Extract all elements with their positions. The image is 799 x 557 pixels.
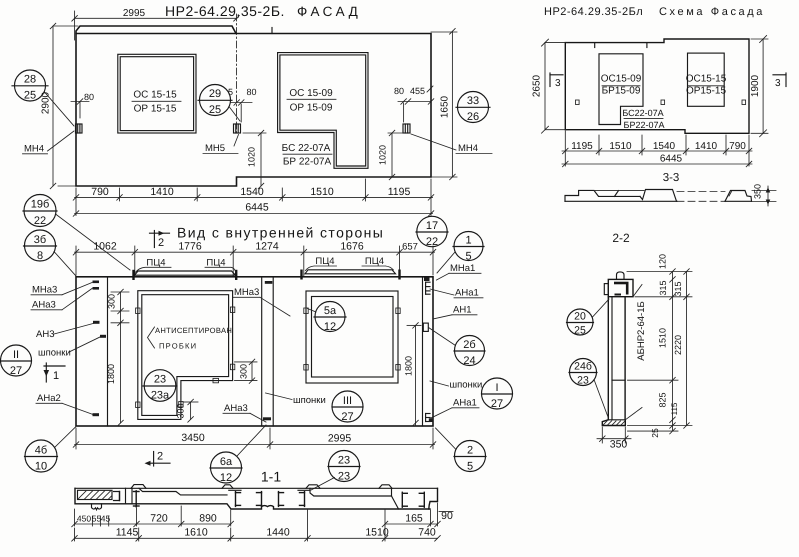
svg-text:315: 315 — [673, 281, 683, 296]
svg-text:1800: 1800 — [404, 356, 414, 376]
svg-text:23а: 23а — [151, 390, 170, 402]
svg-text:Схема Фасада: Схема Фасада — [659, 6, 765, 18]
svg-text:350: 350 — [610, 439, 628, 451]
svg-text:22: 22 — [426, 236, 438, 248]
svg-text:2650: 2650 — [532, 74, 543, 97]
svg-text:27: 27 — [10, 365, 22, 377]
svg-text:2995: 2995 — [123, 8, 146, 19]
svg-text:80: 80 — [247, 87, 257, 97]
svg-text:шпонки: шпонки — [450, 380, 483, 391]
svg-text:5: 5 — [465, 251, 471, 263]
svg-text:АН1: АН1 — [453, 305, 471, 316]
svg-text:350: 350 — [753, 184, 763, 199]
svg-text:ПЦ4: ПЦ4 — [206, 258, 225, 269]
svg-text:1776: 1776 — [178, 241, 202, 253]
svg-text:шпонки: шпонки — [38, 348, 71, 359]
svg-text:ОР 15-15: ОР 15-15 — [134, 104, 177, 115]
svg-text:6445: 6445 — [245, 202, 269, 214]
svg-text:ПЦ4: ПЦ4 — [146, 258, 165, 269]
svg-text:3-3: 3-3 — [663, 172, 680, 184]
svg-text:1610: 1610 — [184, 527, 208, 539]
svg-text:10: 10 — [35, 461, 47, 473]
svg-text:3б: 3б — [34, 234, 46, 246]
svg-text:26: 26 — [467, 111, 479, 123]
svg-text:23: 23 — [154, 374, 166, 386]
svg-text:740: 740 — [418, 527, 436, 539]
svg-text:300: 300 — [176, 403, 186, 418]
svg-text:890: 890 — [199, 513, 217, 525]
svg-text:1062: 1062 — [93, 241, 117, 253]
svg-text:25: 25 — [209, 104, 221, 116]
svg-text:ПРОБКИ: ПРОБКИ — [159, 342, 197, 351]
svg-text:1540: 1540 — [240, 186, 264, 198]
svg-text:45: 45 — [101, 514, 111, 524]
svg-text:НР2-64.29.35-2Бл: НР2-64.29.35-2Бл — [544, 6, 643, 18]
svg-text:1510: 1510 — [310, 186, 334, 198]
svg-text:120: 120 — [658, 254, 668, 269]
svg-text:12: 12 — [324, 321, 336, 333]
svg-text:1800: 1800 — [106, 364, 116, 384]
svg-text:657: 657 — [402, 242, 418, 253]
svg-text:1195: 1195 — [388, 186, 411, 198]
svg-text:22: 22 — [34, 215, 46, 227]
svg-text:МНа3: МНа3 — [32, 285, 57, 296]
svg-text:ОР15-15: ОР15-15 — [686, 86, 726, 97]
svg-text:2220: 2220 — [673, 335, 683, 355]
svg-text:1900: 1900 — [750, 74, 761, 97]
svg-text:ПЦ4: ПЦ4 — [365, 256, 384, 267]
svg-text:1650: 1650 — [440, 95, 451, 118]
svg-text:2: 2 — [467, 445, 473, 457]
svg-text:1410: 1410 — [695, 141, 718, 152]
svg-text:1540: 1540 — [653, 141, 676, 152]
svg-text:450: 450 — [77, 514, 91, 524]
svg-text:27: 27 — [341, 411, 353, 423]
svg-text:АБНР2-64-1Б: АБНР2-64-1Б — [636, 301, 647, 360]
svg-text:115: 115 — [670, 402, 679, 415]
svg-text:23: 23 — [338, 471, 350, 483]
svg-text:5: 5 — [467, 461, 473, 473]
svg-text:1: 1 — [465, 235, 471, 247]
svg-text:ОС15-09: ОС15-09 — [601, 74, 642, 85]
svg-text:28: 28 — [24, 74, 36, 86]
svg-text:23: 23 — [338, 455, 350, 467]
svg-text:6а: 6а — [220, 456, 233, 468]
svg-text:БС 22-07А: БС 22-07А — [282, 143, 331, 154]
svg-text:1510: 1510 — [609, 141, 632, 152]
svg-text:АНа3: АНа3 — [32, 300, 56, 311]
svg-text:80: 80 — [84, 92, 94, 102]
svg-text:1510: 1510 — [658, 328, 668, 348]
svg-text:2б: 2б — [463, 339, 475, 351]
svg-text:25: 25 — [574, 325, 586, 337]
svg-text:23: 23 — [577, 375, 589, 387]
svg-text:25: 25 — [650, 428, 660, 438]
svg-text:1195: 1195 — [571, 141, 593, 152]
svg-text:II: II — [13, 349, 19, 361]
svg-text:27: 27 — [491, 398, 503, 410]
svg-text:ФАСАД: ФАСАД — [297, 4, 361, 19]
svg-text:ПЦ4: ПЦ4 — [315, 256, 334, 267]
svg-text:165: 165 — [405, 513, 423, 525]
svg-text:I: I — [495, 382, 498, 394]
svg-text:790: 790 — [729, 141, 746, 152]
svg-text:825: 825 — [658, 392, 668, 407]
svg-text:АНТИСЕПТИРОВАН: АНТИСЕПТИРОВАН — [155, 326, 232, 335]
svg-text:АН3: АН3 — [36, 329, 54, 340]
svg-text:НР2-64.29,35-2Б.: НР2-64.29,35-2Б. — [165, 3, 285, 19]
svg-text:790: 790 — [91, 186, 109, 198]
svg-text:1676: 1676 — [340, 241, 364, 253]
svg-text:Вид с внутренней стороны: Вид с внутренней стороны — [177, 225, 384, 241]
svg-text:29: 29 — [209, 88, 221, 100]
svg-text:1274: 1274 — [255, 241, 279, 253]
svg-text:24: 24 — [463, 355, 475, 367]
svg-text:АНа3: АНа3 — [224, 403, 248, 414]
svg-text:МН4: МН4 — [458, 143, 478, 154]
svg-text:3450: 3450 — [181, 432, 205, 444]
svg-text:4б: 4б — [35, 445, 47, 457]
svg-text:300: 300 — [107, 294, 117, 309]
svg-text:ОС15-15: ОС15-15 — [686, 74, 727, 85]
svg-text:БР22-07А: БР22-07А — [624, 120, 665, 130]
svg-text:3: 3 — [555, 78, 561, 89]
svg-text:АНа1: АНа1 — [453, 398, 477, 409]
svg-text:3: 3 — [775, 78, 781, 89]
svg-text:5а: 5а — [324, 305, 337, 317]
svg-text:АНа2: АНа2 — [37, 393, 61, 404]
svg-text:ОС 15-09: ОС 15-09 — [289, 88, 333, 99]
svg-text:24б: 24б — [574, 361, 592, 373]
svg-text:90: 90 — [441, 510, 453, 522]
svg-text:ОС 15-15: ОС 15-15 — [133, 90, 177, 101]
svg-text:МН5: МН5 — [205, 143, 225, 154]
svg-text:МНа1: МНа1 — [450, 263, 475, 274]
svg-text:300: 300 — [239, 364, 249, 379]
svg-text:ОР 15-09: ОР 15-09 — [290, 103, 333, 114]
svg-text:1510: 1510 — [365, 527, 389, 539]
svg-text:25: 25 — [24, 90, 36, 102]
svg-text:2: 2 — [158, 237, 164, 249]
svg-text:1: 1 — [53, 370, 59, 382]
svg-text:455: 455 — [410, 86, 425, 96]
svg-text:2995: 2995 — [328, 433, 352, 445]
svg-text:МН4: МН4 — [24, 144, 44, 155]
svg-text:6445: 6445 — [660, 154, 683, 165]
svg-text:8: 8 — [37, 250, 43, 262]
svg-text:315: 315 — [658, 280, 668, 295]
svg-text:2-2: 2-2 — [612, 231, 630, 245]
svg-text:19б: 19б — [31, 199, 50, 211]
svg-text:АНа1: АНа1 — [455, 288, 479, 299]
svg-text:1-1: 1-1 — [261, 469, 281, 485]
svg-text:1410: 1410 — [150, 186, 174, 198]
svg-text:33: 33 — [467, 95, 479, 107]
svg-text:шпонки: шпонки — [293, 395, 326, 406]
svg-text:1020: 1020 — [378, 145, 388, 165]
svg-text:МНа3: МНа3 — [234, 287, 259, 298]
svg-text:БР15-09: БР15-09 — [602, 86, 641, 97]
svg-text:БС22-07А: БС22-07А — [622, 108, 663, 118]
svg-text:80: 80 — [394, 86, 404, 96]
svg-text:20: 20 — [574, 311, 586, 323]
svg-text:1440: 1440 — [266, 527, 290, 539]
svg-text:1020: 1020 — [247, 147, 257, 167]
svg-text:17: 17 — [426, 220, 438, 232]
svg-text:III: III — [343, 395, 352, 407]
svg-text:720: 720 — [150, 513, 168, 525]
svg-text:12: 12 — [220, 472, 232, 484]
svg-text:1145: 1145 — [116, 527, 139, 539]
svg-text:БР 22-07А: БР 22-07А — [283, 157, 332, 168]
svg-text:2: 2 — [157, 451, 163, 463]
